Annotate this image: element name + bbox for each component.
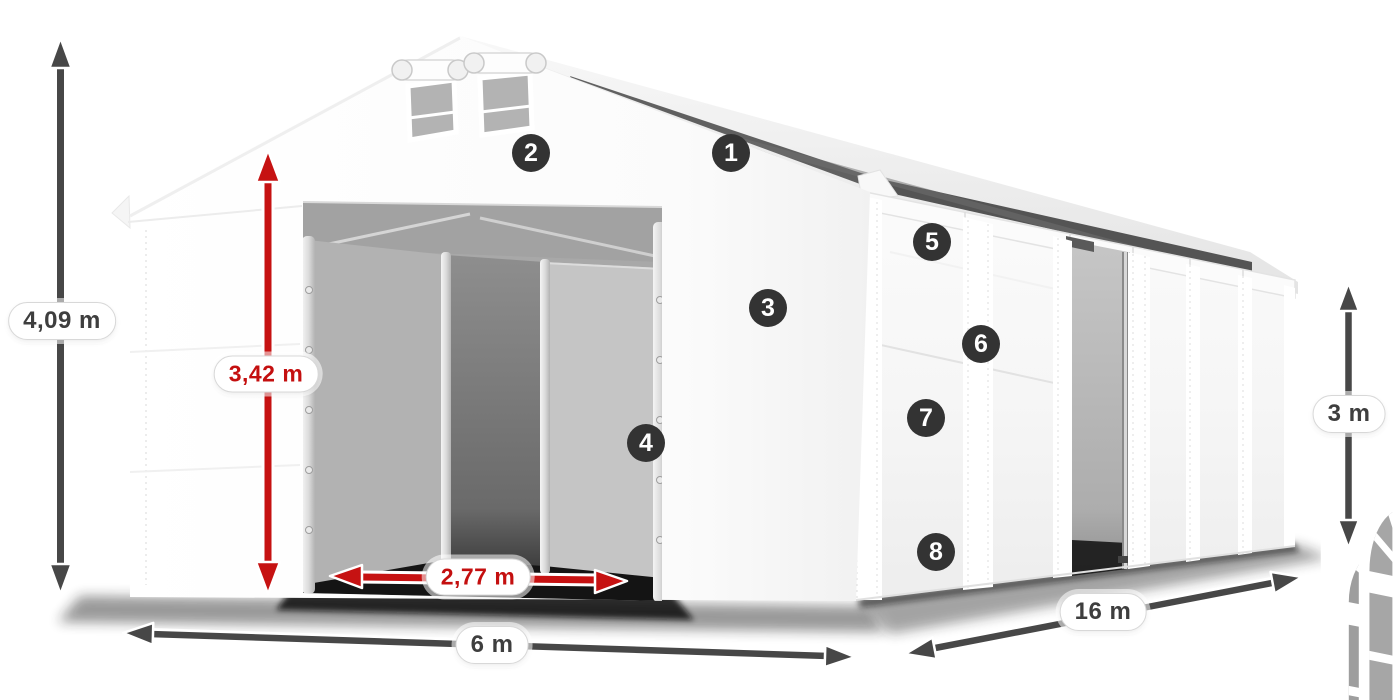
callout-badge-7[interactable]: 7 — [907, 399, 945, 437]
dimension-label-total-height: 4,09 m — [8, 302, 116, 340]
callout-badge-3[interactable]: 3 — [749, 289, 787, 327]
side-window-rear-2 — [1392, 413, 1400, 700]
side-entrance-opening — [1066, 236, 1138, 576]
dimension-label-length: 16 m — [1060, 593, 1147, 631]
dimension-label-width: 6 m — [456, 626, 529, 664]
callout-badge-1[interactable]: 1 — [712, 134, 750, 172]
dimension-label-entrance-height: 3,42 m — [214, 356, 319, 393]
tent-illustration — [0, 0, 1400, 700]
callout-badge-6[interactable]: 6 — [962, 325, 1000, 363]
dimension-label-side-height: 3 m — [1313, 395, 1386, 433]
dimension-label-entrance-width: 2,77 m — [426, 559, 531, 596]
tent-dimension-diagram: 4,09 m 3,42 m 2,77 m 6 m 16 m 3 m 1 2 3 … — [0, 0, 1400, 700]
callout-badge-2[interactable]: 2 — [512, 134, 550, 172]
callout-badge-8[interactable]: 8 — [917, 533, 955, 571]
callout-badge-5[interactable]: 5 — [913, 223, 951, 261]
callout-badge-4[interactable]: 4 — [627, 424, 665, 462]
